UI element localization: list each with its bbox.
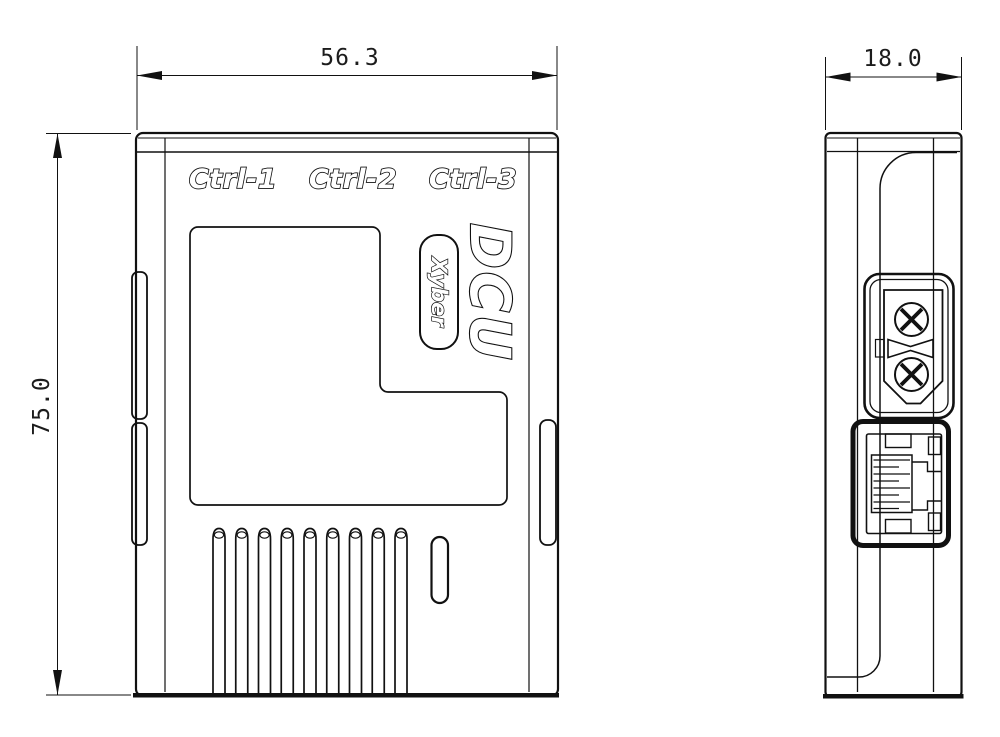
side-recessed-panel	[827, 153, 957, 678]
port-label-ctrl-3: Ctrl-3	[423, 163, 523, 195]
arrowhead-left	[137, 71, 162, 80]
arrowhead-left	[826, 73, 851, 82]
port-label-ctrl-2: Ctrl-2	[303, 163, 403, 195]
vent-fin-cap	[214, 532, 223, 538]
vent-fin	[236, 529, 248, 695]
port-label-ctrl-1: Ctrl-1	[183, 163, 283, 195]
drawing-linework	[0, 0, 1000, 737]
dimension-height	[46, 134, 131, 696]
rj45-bezel	[853, 422, 949, 546]
rj45-pins	[874, 460, 911, 509]
left-clip-upper	[132, 272, 147, 419]
vent-fin-cap	[351, 532, 360, 538]
vent-fin-cap	[260, 532, 269, 538]
arrowhead-top	[53, 134, 62, 159]
rj45-cavity	[867, 434, 942, 534]
led-slot	[432, 537, 449, 603]
product-name-logo: DCU	[461, 226, 519, 360]
side-view	[823, 133, 964, 699]
brand-badge-text: Xyber	[427, 257, 451, 327]
left-clip-lower	[132, 423, 147, 545]
rj45-top-tab	[886, 434, 912, 448]
vent-fin	[327, 529, 339, 695]
vent-fin	[350, 529, 362, 695]
arrowhead-bottom	[53, 670, 62, 695]
vent-fin-cap	[396, 532, 405, 538]
vent-slots	[213, 529, 407, 695]
right-clip	[540, 420, 556, 545]
arrowhead-right	[937, 73, 962, 82]
vent-fin-cap	[305, 532, 314, 538]
rj45-bottom-right-pad	[929, 513, 941, 531]
vent-fin	[259, 529, 271, 695]
rj45-pin-block	[872, 455, 913, 513]
dimension-annotations	[46, 46, 962, 695]
vent-fin-cap	[283, 532, 292, 538]
brand-badge: Xyber	[419, 234, 459, 350]
vent-fin	[213, 529, 225, 695]
vent-fin	[395, 529, 407, 695]
technical-drawing-canvas: 56.3 75.0 18.0 Ctrl-1 Ctrl-2 Ctrl-3 DCU …	[0, 0, 1000, 737]
vent-fin	[304, 529, 316, 695]
rj45-bottom-tab	[886, 520, 912, 534]
rj45-latch-step-top	[912, 462, 942, 472]
rj45-ethernet-port	[853, 422, 949, 546]
vent-fin-cap	[328, 532, 337, 538]
vent-fin-cap	[237, 532, 246, 538]
xt30-bowtie-key	[888, 340, 933, 358]
front-bottom-edge	[133, 693, 559, 698]
height-dimension-text: 75.0	[29, 361, 55, 451]
side-body-outline	[826, 133, 962, 697]
rj45-top-right-pad	[929, 437, 941, 455]
front-view	[132, 133, 559, 698]
side-bottom-edge	[823, 694, 964, 699]
width-dimension-text: 56.3	[305, 45, 395, 71]
arrowhead-right	[532, 71, 557, 80]
front-body-outline	[136, 133, 558, 696]
xt30-power-connector	[865, 274, 954, 418]
depth-dimension-text: 18.0	[848, 46, 938, 72]
vent-fin	[372, 529, 384, 695]
rj45-latch-step-bottom	[912, 501, 942, 510]
vent-fin-cap	[374, 532, 383, 538]
vent-fin	[281, 529, 293, 695]
